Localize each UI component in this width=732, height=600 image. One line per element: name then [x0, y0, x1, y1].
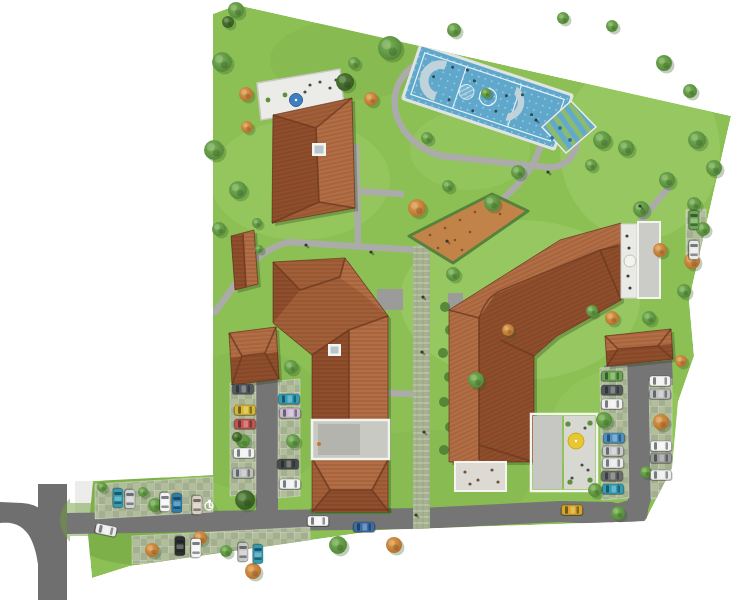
windshield	[654, 442, 657, 450]
tree-canopy	[421, 132, 433, 144]
car	[112, 488, 123, 509]
rear-window	[254, 558, 262, 561]
garage-west-1	[231, 230, 261, 293]
roof-highlight	[317, 518, 322, 525]
terrace-furniture	[328, 86, 331, 89]
tree-canopy	[596, 412, 612, 428]
car	[191, 495, 202, 516]
rear-window	[295, 409, 298, 417]
tree-canopy	[502, 324, 514, 336]
tree-canopy	[229, 181, 247, 199]
roof-highlight	[659, 391, 664, 398]
tree-canopy	[706, 160, 722, 176]
car	[601, 385, 624, 396]
car	[124, 489, 135, 510]
tree-canopy	[481, 88, 491, 98]
tree-canopy	[336, 73, 354, 91]
person	[546, 170, 549, 173]
skylight	[312, 143, 326, 156]
terrace-furniture	[586, 468, 589, 471]
car	[649, 376, 672, 387]
person	[369, 250, 372, 253]
roof-highlight	[611, 473, 616, 480]
tree-canopy	[228, 2, 244, 18]
car	[234, 419, 257, 430]
tree-canopy	[618, 140, 634, 156]
windshield	[193, 499, 201, 502]
garage-east	[605, 329, 676, 369]
footpath	[390, 393, 413, 394]
windshield	[176, 540, 184, 543]
tree-canopy	[557, 12, 569, 24]
tree-canopy	[145, 543, 159, 557]
windshield	[606, 459, 609, 467]
tree-canopy	[329, 536, 347, 554]
rear-window	[618, 459, 621, 467]
rear-window	[293, 460, 296, 468]
tree-canopy	[588, 483, 602, 497]
skylight	[328, 344, 341, 356]
tree-canopy	[97, 482, 107, 492]
tree-canopy	[447, 23, 461, 37]
rear-window	[665, 377, 668, 385]
windshield	[653, 390, 656, 398]
rear-window	[666, 442, 669, 450]
tree-canopy	[255, 245, 263, 253]
roof-highlight	[174, 502, 181, 507]
car	[279, 479, 302, 490]
car	[190, 538, 201, 559]
roof-highlight	[194, 504, 201, 509]
tree-canopy	[408, 199, 426, 217]
tree-canopy	[484, 195, 500, 211]
rear-window	[192, 552, 200, 555]
car	[278, 394, 301, 405]
windshield	[254, 548, 262, 551]
roof-highlight	[611, 401, 616, 408]
tree-canopy	[606, 20, 618, 32]
roof-highlight	[289, 410, 294, 417]
windshield	[239, 546, 247, 549]
tree-canopy	[222, 16, 234, 28]
tree-canopy	[235, 490, 255, 510]
rear-window	[294, 395, 297, 403]
car	[232, 468, 255, 479]
windshield	[654, 471, 657, 479]
windshield	[605, 386, 608, 394]
roof-highlight	[691, 249, 698, 254]
car	[602, 458, 625, 469]
roof-highlight	[242, 386, 247, 393]
rear-window	[617, 372, 620, 380]
tree-canopy	[245, 563, 261, 579]
tree-canopy	[653, 243, 667, 257]
tree-canopy	[212, 52, 232, 72]
garage-west-2	[229, 327, 282, 388]
car	[252, 544, 263, 565]
roof-highlight	[193, 547, 200, 552]
terrace-furniture	[303, 90, 306, 93]
roof-highlight	[659, 378, 664, 385]
rear-window	[249, 449, 252, 457]
tree-canopy	[687, 197, 701, 211]
tree-canopy	[442, 180, 454, 192]
tree-canopy	[378, 36, 402, 60]
terrace-furniture	[308, 83, 311, 86]
car	[159, 492, 170, 513]
car	[174, 536, 185, 557]
rooftop-equipment	[625, 234, 628, 237]
roof-highlight	[244, 421, 249, 428]
terrace-furniture	[463, 470, 466, 473]
rear-window	[193, 509, 201, 512]
rear-window	[666, 471, 669, 479]
rear-window	[114, 502, 122, 505]
site-plan-stage	[0, 0, 732, 600]
person	[414, 513, 417, 516]
rear-window	[161, 506, 169, 509]
roof-highlight	[288, 396, 293, 403]
roof-highlight	[660, 472, 665, 479]
tree-canopy	[348, 57, 360, 69]
hedge-bush	[439, 397, 449, 407]
windshield	[238, 420, 241, 428]
roof-highlight	[611, 387, 616, 394]
windshield	[565, 506, 568, 514]
roof-highlight	[177, 545, 184, 550]
tree-canopy	[688, 131, 706, 149]
roof-highlight	[240, 551, 247, 556]
rear-window	[239, 556, 247, 559]
roof-highlight	[162, 501, 169, 506]
rear-window	[248, 385, 251, 393]
courtyard-d	[531, 414, 597, 491]
car	[171, 493, 182, 514]
tree-canopy	[677, 284, 691, 298]
car	[353, 522, 376, 533]
roof-highlight	[363, 524, 368, 531]
flat-roof-c	[621, 222, 660, 298]
roof-highlight	[243, 450, 248, 457]
rear-window	[323, 517, 326, 525]
terrace-furniture	[496, 480, 499, 483]
car	[603, 433, 626, 444]
rooftop-equipment	[627, 246, 630, 249]
rear-window	[690, 224, 698, 227]
person	[304, 243, 307, 246]
person	[422, 430, 425, 433]
roof-highlight	[613, 435, 618, 442]
terrace-c	[455, 462, 506, 491]
rear-window	[666, 454, 669, 462]
tree-canopy	[585, 159, 597, 171]
rooftop-equipment	[626, 274, 629, 277]
tree-canopy	[653, 414, 669, 430]
tree-canopy	[675, 355, 687, 367]
rear-window	[690, 254, 698, 257]
hedge-bush	[438, 348, 448, 358]
windshield	[607, 434, 610, 442]
roof-highlight	[611, 373, 616, 380]
tree-canopy	[286, 434, 300, 448]
car	[688, 240, 699, 261]
car	[601, 371, 624, 382]
car	[650, 441, 673, 452]
site-plan-rendering	[0, 0, 732, 600]
windshield	[654, 454, 657, 462]
car	[601, 399, 624, 410]
windshield	[192, 542, 200, 545]
terrace-furniture	[583, 426, 586, 429]
car	[650, 470, 673, 481]
windshield	[357, 523, 360, 531]
courtyard-b	[312, 420, 389, 459]
car	[279, 408, 302, 419]
rooftop-equipment	[628, 286, 631, 289]
terrace-furniture	[318, 80, 321, 83]
rear-window	[250, 420, 253, 428]
rear-window	[176, 550, 184, 553]
windshield	[173, 497, 181, 500]
windshield	[653, 377, 656, 385]
person	[638, 204, 641, 207]
terrace-plant	[567, 479, 572, 484]
windshield	[283, 480, 286, 488]
windshield	[283, 409, 286, 417]
windshield	[605, 472, 608, 480]
car	[650, 453, 673, 464]
roof-highlight	[115, 497, 122, 502]
windshield	[282, 395, 285, 403]
windshield	[606, 485, 609, 493]
tree-canopy	[386, 537, 402, 553]
car	[277, 459, 300, 470]
windshield	[311, 517, 314, 525]
terrace-furniture	[490, 468, 493, 471]
terrace-plant	[587, 477, 592, 482]
car	[601, 471, 624, 482]
tree-canopy	[241, 121, 253, 133]
tree-canopy	[642, 311, 656, 325]
roof-highlight	[612, 486, 617, 493]
rear-window	[617, 386, 620, 394]
windshield	[161, 496, 169, 499]
roof-highlight	[612, 460, 617, 467]
terrace-plant	[587, 420, 592, 425]
roof-highlight	[660, 443, 665, 450]
car	[649, 389, 672, 400]
rear-window	[369, 523, 372, 531]
car	[602, 446, 625, 457]
person	[534, 118, 537, 121]
roof-highlight	[612, 448, 617, 455]
car	[233, 448, 256, 459]
car	[237, 542, 248, 563]
terrace-furniture	[570, 476, 573, 479]
tree-canopy	[284, 360, 298, 374]
roof-highlight	[571, 507, 576, 514]
tree-canopy	[633, 201, 649, 217]
roof-highlight	[244, 407, 249, 414]
rear-window	[617, 400, 620, 408]
rear-window	[618, 485, 621, 493]
tree-canopy	[232, 432, 242, 442]
hedge-bush	[439, 445, 449, 455]
tree-canopy	[239, 87, 253, 101]
tree-canopy	[683, 84, 697, 98]
windshield	[605, 372, 608, 380]
tree-canopy	[446, 267, 460, 281]
car	[307, 516, 330, 527]
rear-window	[577, 506, 580, 514]
terrace-plant	[266, 98, 271, 103]
rear-window	[295, 480, 298, 488]
rear-window	[617, 472, 620, 480]
roof-highlight	[255, 553, 262, 558]
terrace-furniture	[476, 478, 479, 481]
rear-window	[665, 390, 668, 398]
tree-canopy	[204, 140, 224, 160]
tree-canopy	[611, 506, 625, 520]
tree-canopy	[586, 305, 598, 317]
tree-canopy	[659, 172, 675, 188]
roof-highlight	[691, 219, 698, 224]
person	[317, 442, 321, 446]
footpath	[357, 191, 401, 194]
tree-canopy	[252, 218, 262, 228]
rear-window	[126, 503, 134, 506]
car	[232, 384, 255, 395]
tree-canopy	[511, 165, 525, 179]
tree-canopy	[593, 131, 611, 149]
windshield	[236, 469, 239, 477]
terrace-furniture	[580, 463, 583, 466]
concrete-roof	[533, 416, 562, 489]
windshield	[238, 406, 241, 414]
windshield	[690, 244, 698, 247]
windshield	[606, 447, 609, 455]
windshield	[236, 385, 239, 393]
roof-highlight	[242, 470, 247, 477]
tree-canopy	[212, 222, 226, 236]
rear-window	[250, 406, 253, 414]
roof-highlight	[127, 498, 134, 503]
car	[688, 210, 699, 231]
building-a	[272, 98, 358, 226]
roof-highlight	[289, 481, 294, 488]
car	[561, 505, 584, 516]
tree-canopy	[364, 92, 378, 106]
roof-highlight	[287, 461, 292, 468]
windshield	[126, 493, 134, 496]
tree-canopy	[605, 311, 619, 325]
car	[602, 484, 625, 495]
person	[445, 239, 448, 242]
tree-canopy	[138, 487, 148, 497]
car	[234, 405, 257, 416]
terrace-furniture	[468, 482, 471, 485]
rear-window	[173, 507, 181, 510]
road	[256, 380, 278, 516]
rear-window	[619, 434, 622, 442]
windshield	[114, 492, 122, 495]
terrace-plant	[565, 421, 570, 426]
roof-highlight	[660, 455, 665, 462]
windshield	[281, 460, 284, 468]
rear-window	[618, 447, 621, 455]
windshield	[237, 449, 240, 457]
windshield	[605, 400, 608, 408]
person	[421, 295, 424, 298]
tree-canopy	[656, 55, 672, 71]
rooftop-dome	[624, 255, 636, 267]
windshield	[690, 214, 698, 217]
terrace-plant	[283, 93, 288, 98]
person	[420, 350, 423, 353]
tree-canopy	[220, 545, 232, 557]
tree-canopy	[468, 372, 484, 388]
rear-window	[248, 469, 251, 477]
